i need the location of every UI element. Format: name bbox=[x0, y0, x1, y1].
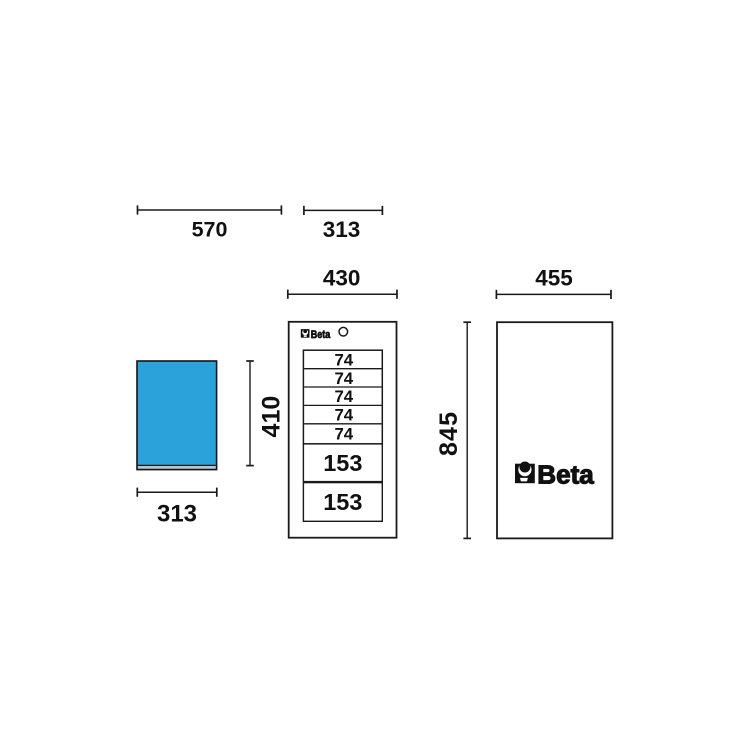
svg-text:Beta: Beta bbox=[537, 461, 594, 489]
svg-text:455: 455 bbox=[535, 266, 573, 291]
svg-text:570: 570 bbox=[192, 218, 228, 242]
svg-text:74: 74 bbox=[334, 406, 353, 425]
svg-text:153: 153 bbox=[323, 450, 362, 476]
svg-text:430: 430 bbox=[323, 266, 361, 291]
svg-text:74: 74 bbox=[334, 387, 353, 406]
svg-text:74: 74 bbox=[334, 369, 353, 388]
svg-text:Beta: Beta bbox=[311, 329, 331, 341]
svg-text:313: 313 bbox=[323, 217, 361, 242]
svg-text:74: 74 bbox=[334, 425, 353, 444]
svg-text:410: 410 bbox=[257, 396, 285, 438]
svg-text:313: 313 bbox=[157, 500, 197, 527]
svg-text:74: 74 bbox=[334, 351, 353, 370]
svg-text:845: 845 bbox=[435, 412, 463, 456]
svg-text:153: 153 bbox=[323, 489, 362, 515]
